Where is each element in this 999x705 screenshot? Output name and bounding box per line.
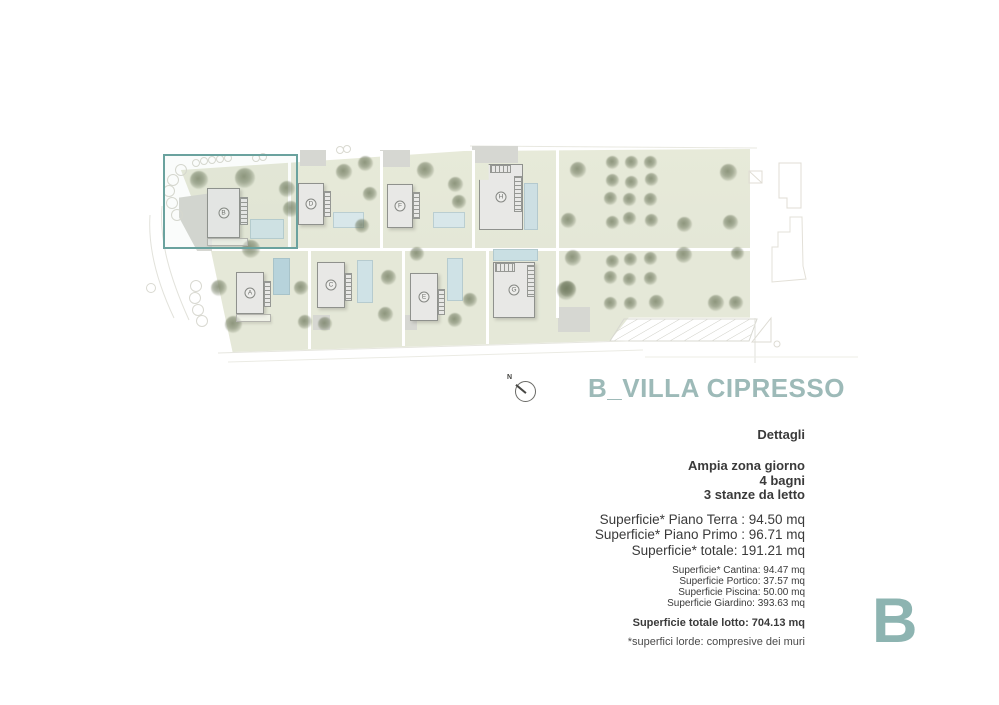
north-indicator: N: [515, 381, 536, 402]
pool: [273, 258, 290, 295]
tree-icon: [565, 250, 581, 266]
neighbor-outline: [749, 171, 762, 183]
building-g: G: [493, 262, 535, 318]
details-panel: Dettagli Ampia zona giorno 4 bagni 3 sta…: [595, 427, 805, 648]
building-f: F: [387, 184, 413, 228]
tree-icon: [381, 270, 396, 285]
tree-icon: [318, 317, 332, 331]
building-e: E: [410, 273, 438, 321]
tree-icon: [720, 164, 737, 181]
tree-outline-icon: [190, 280, 202, 292]
tree-icon: [644, 156, 657, 169]
tree-icon: [645, 173, 658, 186]
stairs-icon: [413, 192, 420, 219]
site-plan: A B C D E F G H: [0, 0, 999, 705]
lot-division-line: [472, 150, 475, 248]
tree-icon: [644, 272, 657, 285]
tree-icon: [606, 156, 619, 169]
tree-icon: [606, 216, 619, 229]
tree-icon: [363, 187, 377, 201]
footnote: *superfici lorde: compresive dei muri: [595, 636, 805, 648]
tree-icon: [336, 164, 352, 180]
neighbor-outline: [752, 318, 771, 342]
total-lot-line: Superficie totale lotto: 704.13 mq: [595, 617, 805, 629]
tree-icon: [604, 271, 617, 284]
tree-icon: [708, 295, 724, 311]
tree-icon: [417, 162, 434, 179]
surface-secondary-line: Superficie Piscina: 50.00 mq: [595, 587, 805, 598]
neighbor-outline: [772, 217, 806, 282]
tree-icon: [570, 162, 586, 178]
page-title: B_VILLA CIPRESSO: [588, 373, 845, 404]
brochure-page: A B C D E F G H: [0, 0, 999, 705]
building-c: C: [317, 262, 345, 308]
tree-icon: [644, 193, 657, 206]
tree-icon: [452, 195, 466, 209]
lot-division-line: [380, 151, 383, 248]
lot-division-line: [402, 251, 405, 346]
hatched-strip: [610, 319, 757, 341]
surface-secondary-line: Superficie Giardino: 393.63 mq: [595, 598, 805, 609]
building-label: H: [496, 192, 507, 203]
villa-letter-watermark: B: [872, 590, 918, 653]
building-label: D: [306, 199, 317, 210]
lot-division-line: [556, 150, 559, 248]
pool: [493, 249, 538, 261]
tree-icon: [623, 273, 636, 286]
lot-division-line: [308, 251, 311, 349]
building-label: G: [509, 285, 520, 296]
pool: [447, 258, 463, 301]
tree-icon: [723, 215, 738, 230]
building-label: A: [245, 288, 256, 299]
tree-icon: [355, 219, 369, 233]
north-needle-icon: [515, 383, 526, 393]
building-label: C: [326, 280, 337, 291]
tree-icon: [294, 281, 308, 295]
details-heading: Dettagli: [595, 427, 805, 442]
stairs-icon: [514, 176, 522, 212]
tree-icon: [410, 247, 424, 261]
tree-icon: [731, 247, 744, 260]
stairs-icon: [490, 165, 511, 173]
tree-icon: [677, 217, 692, 232]
building-label: F: [395, 201, 406, 212]
feature-line: Ampia zona giorno: [595, 459, 805, 474]
pool: [524, 183, 538, 230]
tree-outline-icon: [196, 315, 208, 327]
tree-icon: [604, 297, 617, 310]
tree-icon: [604, 192, 617, 205]
surface-line: Superficie* totale: 191.21 mq: [595, 543, 805, 559]
neighbor-outline: [779, 163, 801, 208]
tree-icon: [624, 253, 637, 266]
stairs-icon: [438, 289, 445, 315]
plan-linework: [0, 0, 999, 705]
feature-line: 4 bagni: [595, 474, 805, 489]
driveway-pad: [300, 150, 326, 166]
building-d: D: [298, 183, 324, 225]
villa-b-highlight-box: [163, 154, 298, 249]
north-label: N: [507, 374, 512, 381]
stairs-icon: [527, 265, 535, 297]
surface-line: Superficie* Piano Terra : 94.50 mq: [595, 512, 805, 528]
stairs-icon: [264, 281, 271, 307]
site-lower-band: [211, 251, 750, 352]
building-a: A: [236, 272, 264, 314]
tree-icon: [358, 156, 373, 171]
stairs-icon: [495, 263, 515, 272]
tree-icon: [676, 247, 692, 263]
porch: [236, 314, 271, 322]
driveway-pad: [558, 307, 590, 332]
tree-icon: [606, 174, 619, 187]
tree-icon: [623, 212, 636, 225]
pool: [357, 260, 373, 303]
surface-line: Superficie* Piano Primo : 96.71 mq: [595, 527, 805, 543]
tree-icon: [625, 156, 638, 169]
tree-icon: [649, 295, 664, 310]
tree-icon: [448, 313, 462, 327]
surface-secondary-line: Superficie* Cantina: 94.47 mq: [595, 565, 805, 576]
tree-icon: [623, 193, 636, 206]
tree-icon: [729, 296, 743, 310]
tree-icon: [645, 214, 658, 227]
driveway-pad: [380, 150, 410, 167]
tree-icon: [625, 176, 638, 189]
stairs-icon: [324, 191, 331, 217]
tree-icon: [606, 255, 619, 268]
tree-icon: [561, 213, 576, 228]
stairs-icon: [345, 273, 352, 301]
driveway-pad: [472, 146, 518, 163]
tree-outline-icon: [343, 145, 351, 153]
surface-secondary-line: Superficie Portico: 37.57 mq: [595, 576, 805, 587]
tree-icon: [557, 281, 576, 300]
tree-outline-icon: [189, 292, 201, 304]
tree-icon: [378, 307, 393, 322]
tree-icon: [448, 177, 463, 192]
tree-icon: [463, 293, 477, 307]
tree-icon: [211, 280, 227, 296]
building-label: E: [419, 292, 430, 303]
tree-icon: [644, 252, 657, 265]
pool: [433, 212, 465, 228]
tree-outline-icon: [146, 283, 156, 293]
lot-division-line: [486, 251, 489, 344]
tree-icon: [624, 297, 637, 310]
feature-line: 3 stanze da letto: [595, 488, 805, 503]
tree-icon: [298, 315, 312, 329]
